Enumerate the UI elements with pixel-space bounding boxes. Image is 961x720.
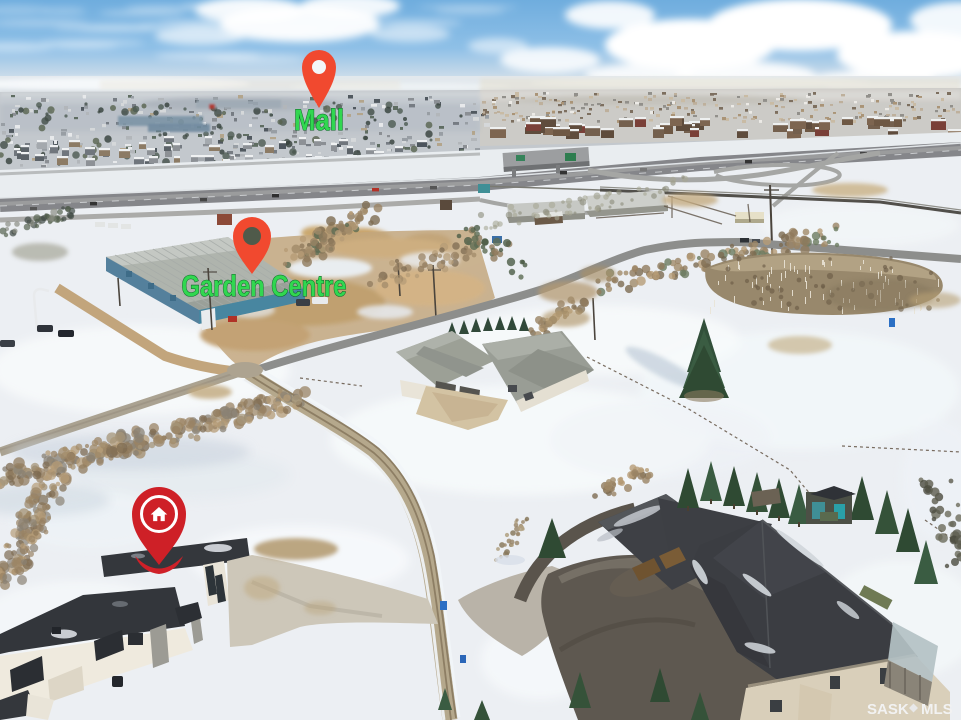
- svg-text:Mall: Mall: [294, 104, 344, 137]
- svg-text:SASK: SASK: [867, 701, 909, 718]
- svg-text:MLS: MLS: [921, 701, 953, 718]
- svg-text:Garden Centre: Garden Centre: [182, 270, 347, 303]
